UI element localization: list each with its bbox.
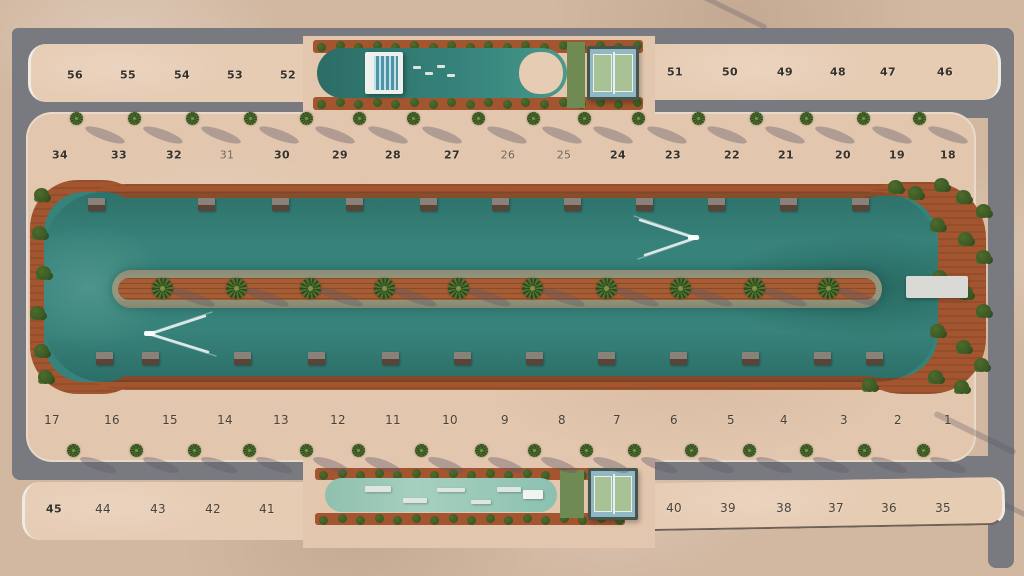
lot-8[interactable]: 8 [558, 413, 566, 427]
lot-48[interactable]: 48 [830, 66, 846, 79]
lot-53[interactable]: 53 [227, 69, 243, 82]
lot-43[interactable]: 43 [150, 502, 166, 516]
lot-33[interactable]: 33 [111, 149, 127, 162]
lot-32[interactable]: 32 [166, 149, 182, 162]
lot-13[interactable]: 13 [273, 413, 289, 427]
lot-16[interactable]: 16 [104, 413, 120, 427]
lot-28[interactable]: 28 [385, 149, 401, 162]
lot-34[interactable]: 34 [52, 149, 68, 162]
lot-56[interactable]: 56 [67, 69, 83, 82]
lot-11[interactable]: 11 [385, 413, 401, 427]
lot-3[interactable]: 3 [840, 413, 848, 427]
lot-23[interactable]: 23 [665, 149, 681, 162]
lot-38[interactable]: 38 [776, 501, 792, 515]
lot-5[interactable]: 5 [727, 413, 735, 427]
lot-35[interactable]: 35 [935, 501, 951, 515]
lot-19[interactable]: 19 [889, 149, 905, 162]
lot-30[interactable]: 30 [274, 149, 290, 162]
lot-50[interactable]: 50 [722, 66, 738, 79]
lot-44[interactable]: 44 [95, 502, 111, 516]
lot-7[interactable]: 7 [613, 413, 621, 427]
lot-18[interactable]: 18 [940, 149, 956, 162]
lot-42[interactable]: 42 [205, 502, 221, 516]
lot-1[interactable]: 1 [944, 413, 952, 427]
lot-51[interactable]: 51 [667, 66, 683, 79]
lot-29[interactable]: 29 [332, 149, 348, 162]
lot-46[interactable]: 46 [937, 66, 953, 79]
lot-22[interactable]: 22 [724, 149, 740, 162]
lot-21[interactable]: 21 [778, 149, 794, 162]
lot-12[interactable]: 12 [330, 413, 346, 427]
lot-40[interactable]: 40 [666, 501, 682, 515]
lot-31[interactable]: 31 [220, 149, 235, 162]
lot-45[interactable]: 45 [46, 503, 62, 516]
resort-master-plan: 5655545352515049484746343332313029282726… [0, 0, 1024, 576]
lot-25[interactable]: 25 [557, 149, 572, 162]
lot-6[interactable]: 6 [670, 413, 678, 427]
lot-37[interactable]: 37 [828, 501, 844, 515]
lot-17[interactable]: 17 [44, 413, 60, 427]
lot-55[interactable]: 55 [120, 69, 136, 82]
lot-10[interactable]: 10 [442, 413, 458, 427]
lot-2[interactable]: 2 [894, 413, 902, 427]
lot-4[interactable]: 4 [780, 413, 788, 427]
lot-41[interactable]: 41 [259, 502, 275, 516]
lot-14[interactable]: 14 [217, 413, 233, 427]
lot-47[interactable]: 47 [880, 66, 896, 79]
lot-36[interactable]: 36 [881, 501, 897, 515]
lot-15[interactable]: 15 [162, 413, 178, 427]
lot-52[interactable]: 52 [280, 69, 296, 82]
lot-39[interactable]: 39 [720, 501, 736, 515]
lot-27[interactable]: 27 [444, 149, 460, 162]
lot-numbers-layer: 5655545352515049484746343332313029282726… [0, 0, 1024, 576]
lot-54[interactable]: 54 [174, 69, 190, 82]
lot-9[interactable]: 9 [501, 413, 509, 427]
lot-20[interactable]: 20 [835, 149, 851, 162]
lot-49[interactable]: 49 [777, 66, 793, 79]
lot-24[interactable]: 24 [610, 149, 626, 162]
lot-26[interactable]: 26 [501, 149, 516, 162]
